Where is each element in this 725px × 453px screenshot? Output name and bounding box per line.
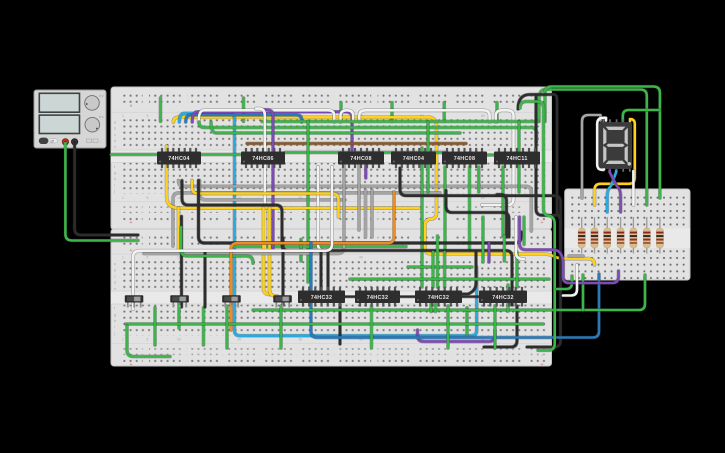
svg-text:b: b [114, 268, 116, 272]
svg-text:/: / [100, 140, 101, 144]
svg-text:74HC32: 74HC32 [428, 295, 450, 301]
svg-text:74HC32: 74HC32 [367, 295, 389, 301]
svg-text:+: + [541, 362, 544, 368]
svg-text:g: g [114, 171, 116, 175]
svg-text:74HC04: 74HC04 [403, 156, 425, 162]
svg-text:a: a [114, 120, 116, 124]
svg-text:74HC08: 74HC08 [454, 156, 476, 162]
svg-text:74HC11: 74HC11 [506, 156, 527, 162]
svg-text:40: 40 [359, 256, 363, 260]
svg-text:5: 5 [147, 114, 149, 118]
svg-text:f: f [114, 307, 115, 311]
svg-text:74HC08: 74HC08 [350, 156, 372, 162]
svg-text:1: 1 [122, 256, 124, 260]
svg-text:5: 5 [147, 196, 149, 200]
svg-text:5: 5 [147, 338, 149, 342]
svg-text:60: 60 [481, 114, 485, 118]
svg-text:30: 30 [299, 338, 303, 342]
svg-text:74HC32: 74HC32 [311, 295, 333, 301]
svg-text:h: h [114, 319, 116, 323]
svg-text:1: 1 [122, 196, 124, 200]
svg-text:e: e [114, 145, 116, 149]
svg-text:+: + [130, 220, 133, 226]
svg-text:+: + [130, 362, 133, 368]
svg-text:c: c [114, 133, 116, 137]
svg-text:74HC32: 74HC32 [492, 295, 514, 301]
svg-text:g: g [114, 313, 116, 317]
svg-text:j: j [113, 331, 115, 335]
svg-text:a: a [114, 262, 116, 266]
svg-text:1: 1 [122, 338, 124, 342]
svg-text:d: d [114, 139, 116, 143]
svg-text:10: 10 [177, 338, 181, 342]
svg-text:+: + [541, 220, 544, 226]
svg-text:5: 5 [147, 256, 149, 260]
svg-text:d: d [114, 281, 116, 285]
svg-text:j: j [113, 190, 115, 194]
svg-text:74HC86: 74HC86 [252, 156, 274, 162]
svg-text:0 V: 0 V [99, 94, 104, 98]
svg-text:e: e [114, 287, 116, 291]
svg-text:1: 1 [122, 114, 124, 118]
svg-text:f: f [114, 165, 115, 169]
svg-text:off: off [50, 139, 54, 143]
svg-text:+: + [130, 104, 133, 110]
svg-text:20: 20 [238, 338, 242, 342]
svg-text:c: c [114, 275, 116, 279]
svg-text:74HC04: 74HC04 [168, 156, 190, 162]
svg-text:h: h [114, 177, 116, 181]
svg-text:b: b [114, 127, 116, 131]
